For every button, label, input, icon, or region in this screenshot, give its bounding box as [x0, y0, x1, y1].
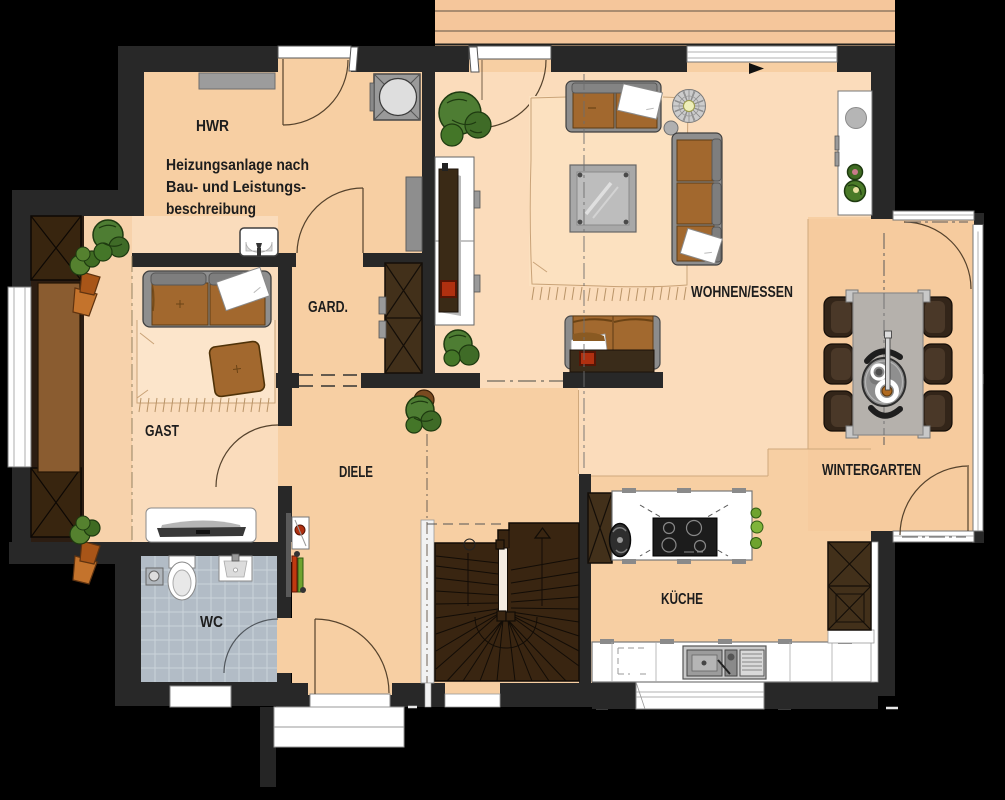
svg-text:GARD.: GARD.	[308, 299, 348, 316]
svg-text:KÜCHE: KÜCHE	[661, 589, 703, 608]
svg-text:DIELE: DIELE	[339, 464, 373, 481]
svg-text:WC: WC	[200, 614, 223, 631]
svg-text:WOHNEN/ESSEN: WOHNEN/ESSEN	[691, 284, 793, 301]
svg-text:WINTERGARTEN: WINTERGARTEN	[822, 462, 921, 479]
svg-text:beschreibung: beschreibung	[166, 201, 256, 218]
svg-text:Heizungsanlage nach: Heizungsanlage nach	[166, 157, 309, 174]
svg-text:HWR: HWR	[196, 118, 229, 135]
svg-text:GAST: GAST	[145, 423, 179, 440]
svg-text:Bau- und Leistungs-: Bau- und Leistungs-	[166, 179, 306, 196]
